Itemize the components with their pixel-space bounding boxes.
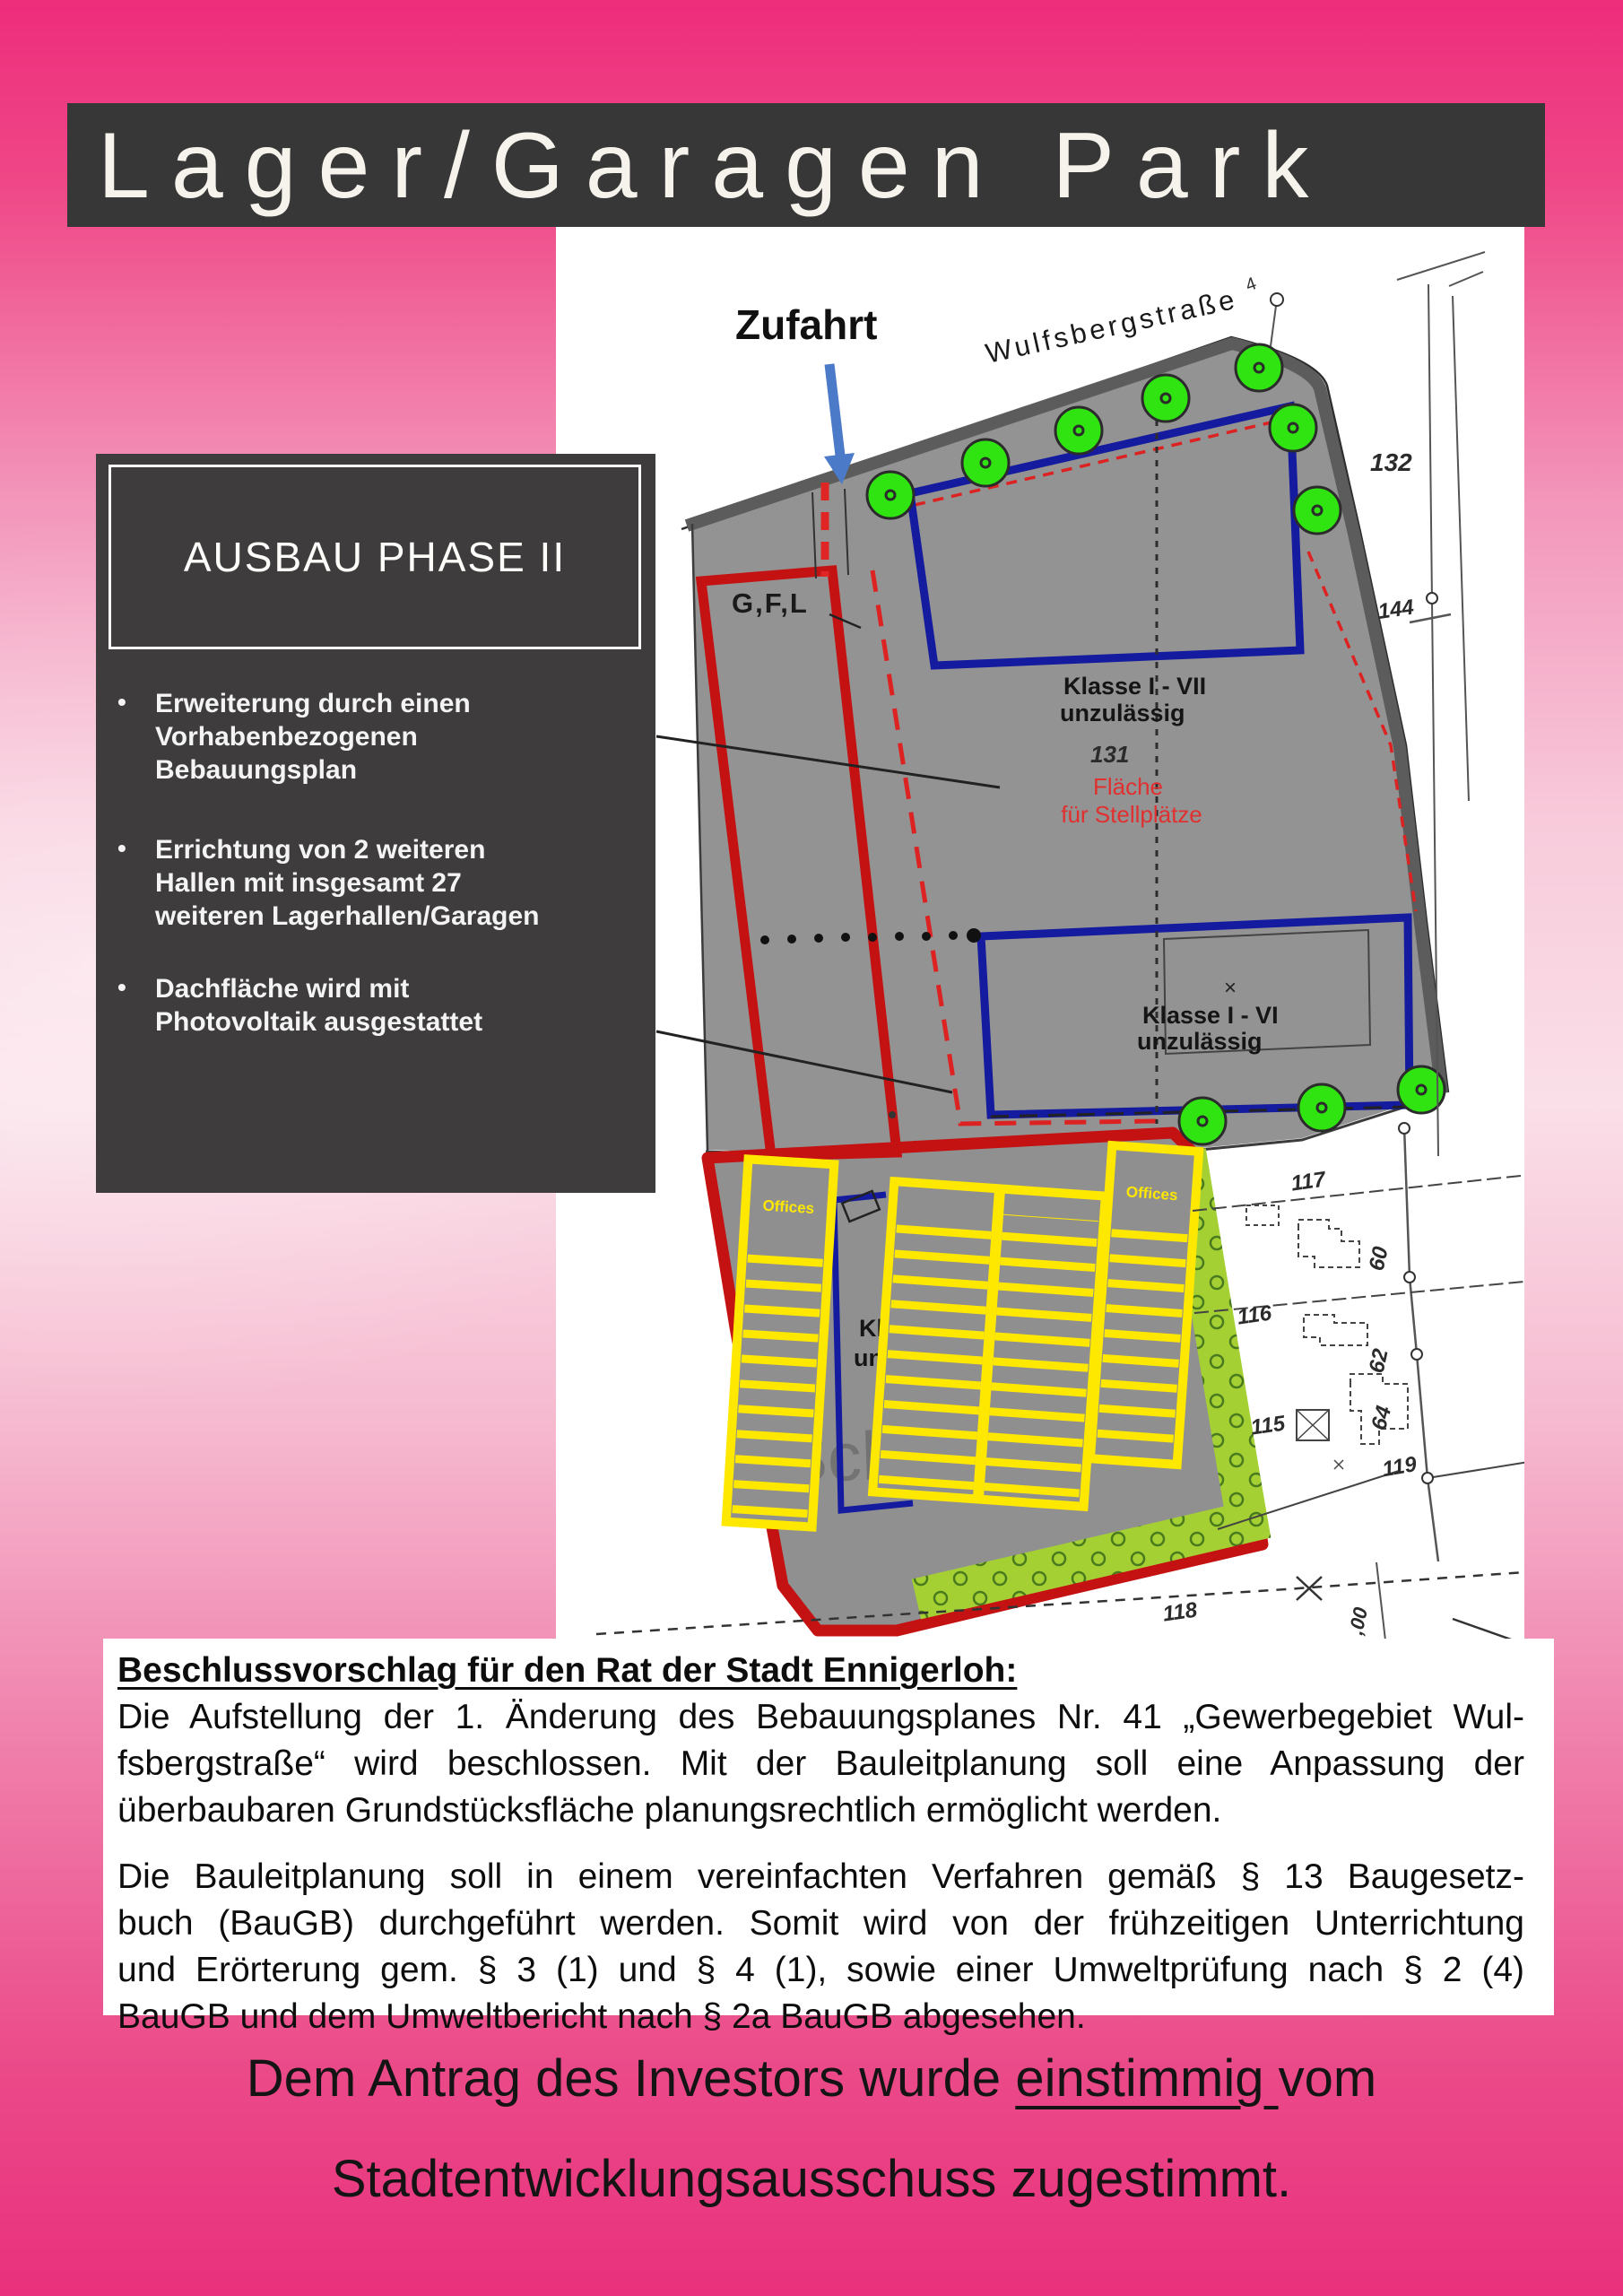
flaeche-label-2: für Stellplätze [1061,801,1202,828]
resolution-block: Beschlussvorschlag für den Rat der Stadt… [103,1639,1554,2015]
parcel-115: 115 [1249,1411,1287,1439]
bullet-line: Hallen mit insgesamt 27 [155,866,643,900]
bullet-item: • Errichtung von 2 weiteren Hallen mit i… [116,833,643,933]
flaeche-label-1: Fläche [1093,773,1163,800]
site-plan: Scherlau Klasse I - VI unzulässig Office… [556,227,1524,1641]
phase-title-frame: AUSBAU PHASE II [108,465,641,649]
zufahrt-label: Zufahrt [735,301,877,348]
parking-structure-left: Offices [726,1159,835,1526]
closing-statement: Dem Antrag des Investors wurde einstimmi… [0,2047,1623,2212]
phase-bullets: • Erweiterung durch einen Vorhabenbezoge… [116,687,643,1039]
closing-line-2: Stadtentwicklungsausschuss zugestimmt. [0,2147,1623,2212]
class-label-upper-1: Klasse I - VII [1063,673,1206,700]
bullet-line: Bebauungsplan [155,753,643,787]
resolution-p1-l1: Die Aufstellung der 1. Änderung des Beba… [117,1694,1524,1741]
bullet-line: Erweiterung durch einen [155,687,643,720]
site-plan-svg: Scherlau Klasse I - VI unzulässig Office… [556,227,1524,1641]
bullet-line: Dachfläche wird mit [155,972,643,1005]
parcel-132: 132 [1370,448,1412,476]
page-title: Lager/Garagen Park [67,103,1545,229]
class-label-mid-2: unzulässig [1137,1028,1263,1055]
bullet-dot: • [117,831,126,865]
parcel-117: 117 [1289,1167,1328,1196]
parking-structure-right: Offices [1090,1145,1199,1465]
slide: Lager/Garagen Park [0,0,1623,2296]
resolution-heading: Beschlussvorschlag für den Rat der Stadt… [117,1648,1524,1694]
bullet-item: • Dachfläche wird mit Photovoltaik ausge… [116,972,643,1039]
resolution-p1-l3: überbaubaren Grundstücksfläche planungsr… [117,1787,1524,1834]
parking-structure-middle [872,1181,1106,1507]
bullet-item: • Erweiterung durch einen Vorhabenbezoge… [116,687,643,787]
bullet-dot: • [117,970,126,1004]
resolution-p2-l4: BauGB und dem Umweltbericht nach § 2a Ba… [117,1994,1524,2040]
bullet-line: Vorhabenbezogenen [155,720,643,753]
gfl-label: G,F,L [732,587,809,619]
resolution-p1-l2: fsbergstraße“ wird beschlossen. Mit der … [117,1741,1524,1787]
parcel-118: 118 [1161,1597,1199,1626]
phase-title: AUSBAU PHASE II [184,533,566,581]
closing-line-1: Dem Antrag des Investors wurde einstimmi… [0,2047,1623,2111]
class-label-upper-2: unzulässig [1060,700,1185,726]
parcel-131: 131 [1090,741,1129,768]
title-banner: Lager/Garagen Park [67,103,1545,227]
x-marker: × [1224,976,1237,1000]
resolution-p2-l1: Die Bauleitplanung soll in einem vereinf… [117,1854,1524,1900]
resolution-p2-l2: buch (BauGB) durchgeführt werden. Somit … [117,1900,1524,1947]
closing-text-post: vom [1279,2049,1377,2108]
bullet-line: Errichtung von 2 weiteren [155,833,643,866]
phase-box: AUSBAU PHASE II • Erweiterung durch eine… [96,454,655,1193]
survey-dot [889,1111,896,1118]
offices-label: Offices [762,1197,815,1217]
bullet-line: weiteren Lagerhallen/Garagen [155,900,643,933]
resolution-p2-l3: und Erörterung gem. § 3 (1) und § 4 (1),… [117,1947,1524,1994]
parcel-144: 144 [1376,596,1415,624]
closing-text-pre: Dem Antrag des Investors wurde [247,2049,1016,2108]
class-label-mid-1: Klasse I - VI [1142,1002,1279,1029]
closing-text-underlined: einstimmig [1015,2049,1278,2108]
bullet-line: Photovoltaik ausgestattet [155,1005,643,1039]
bullet-dot: • [117,685,126,718]
offices-label: Offices [1125,1183,1178,1204]
parcel-116: 116 [1236,1300,1273,1329]
